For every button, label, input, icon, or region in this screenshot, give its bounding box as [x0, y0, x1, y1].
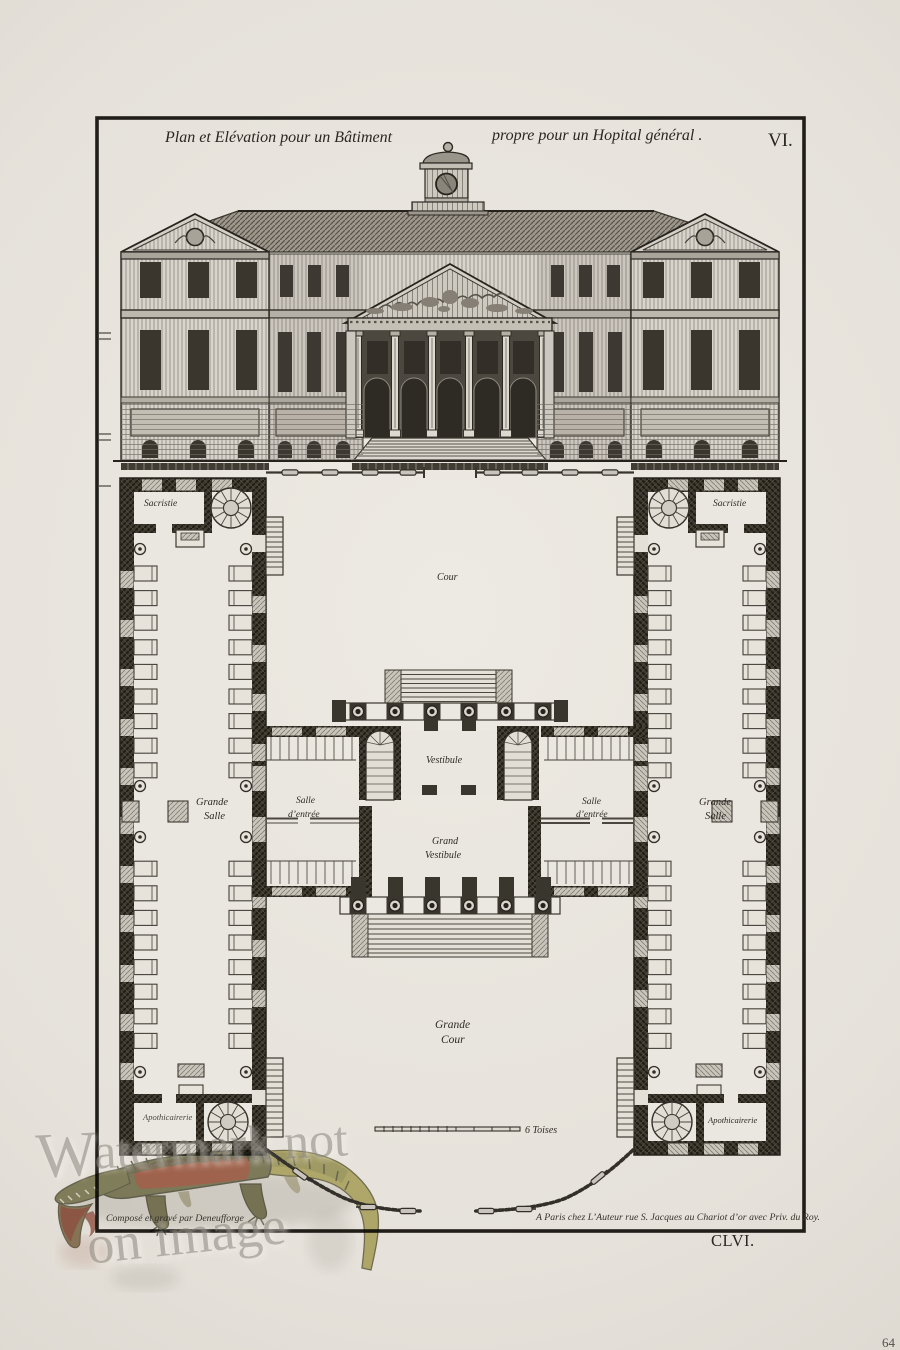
svg-text:Salle: Salle	[296, 796, 315, 806]
svg-text:Vestibule: Vestibule	[426, 755, 463, 766]
svg-text:Cour: Cour	[441, 1034, 465, 1046]
svg-text:d’entrée: d’entrée	[576, 810, 608, 820]
svg-text:Sacristie: Sacristie	[713, 499, 746, 509]
svg-text:CLVI.: CLVI.	[711, 1231, 755, 1250]
svg-text:propre pour un Hopital général: propre pour un Hopital général .	[491, 127, 702, 144]
svg-text:Salle: Salle	[582, 797, 601, 807]
svg-text:d’entrée: d’entrée	[288, 810, 320, 820]
svg-text:Vestibule: Vestibule	[425, 850, 462, 861]
svg-text:W: W	[34, 1117, 99, 1191]
svg-text:VI.: VI.	[768, 130, 793, 151]
svg-text:Grand: Grand	[432, 836, 459, 847]
svg-text:Grande: Grande	[699, 797, 731, 808]
svg-text:Grande: Grande	[196, 797, 228, 808]
svg-text:64: 64	[882, 1335, 896, 1350]
svg-text:Sacristie: Sacristie	[144, 499, 177, 509]
svg-text:Salle: Salle	[705, 811, 726, 822]
svg-text:A Paris chez L’Auteur rue S. J: A Paris chez L’Auteur rue S. Jacques au …	[535, 1212, 820, 1223]
svg-text:6 Toises: 6 Toises	[525, 1125, 557, 1136]
svg-text:Apothicairerie: Apothicairerie	[707, 1115, 757, 1125]
svg-text:Plan et Elévation pour un Bâti: Plan et Elévation pour un Bâtiment	[164, 129, 393, 146]
svg-text:Grande: Grande	[435, 1019, 470, 1031]
svg-text:Composé et gravé par Deneuffor: Composé et gravé par Deneufforge	[106, 1213, 245, 1224]
svg-text:Cour: Cour	[437, 572, 458, 583]
svg-text:Salle: Salle	[204, 811, 225, 822]
